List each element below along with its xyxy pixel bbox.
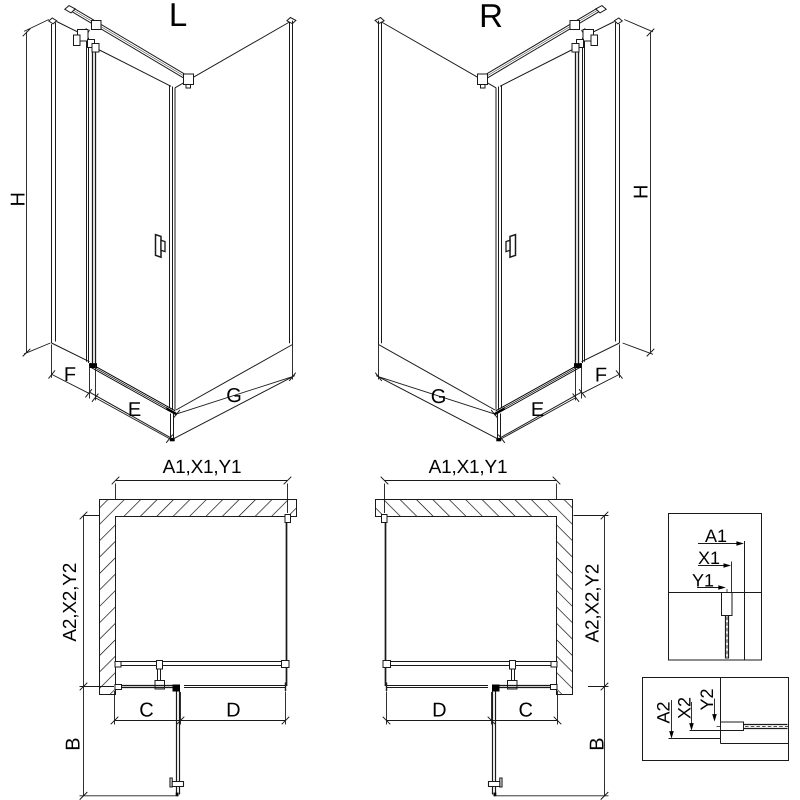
svg-text:X1: X1: [698, 548, 720, 568]
svg-text:C: C: [518, 700, 532, 722]
svg-text:A1,X1,Y1: A1,X1,Y1: [429, 457, 508, 478]
svg-text:G: G: [431, 386, 447, 408]
svg-text:H: H: [8, 192, 30, 206]
svg-text:C: C: [139, 700, 153, 722]
svg-text:H: H: [630, 185, 652, 199]
svg-text:E: E: [531, 399, 544, 421]
svg-text:A1: A1: [705, 526, 727, 546]
svg-text:B: B: [587, 737, 609, 750]
svg-text:Y1: Y1: [692, 571, 714, 591]
svg-text:L: L: [169, 0, 187, 33]
svg-text:X2: X2: [675, 697, 695, 719]
svg-text:D: D: [432, 700, 446, 722]
svg-text:B: B: [63, 737, 85, 750]
svg-text:E: E: [128, 399, 141, 421]
svg-text:Y2: Y2: [697, 688, 717, 710]
svg-text:G: G: [226, 385, 242, 407]
svg-text:A1,X1,Y1: A1,X1,Y1: [163, 457, 242, 478]
svg-text:R: R: [479, 0, 503, 34]
svg-text:F: F: [595, 365, 607, 387]
svg-text:A2: A2: [654, 701, 674, 723]
svg-text:F: F: [64, 364, 76, 386]
svg-text:A2,X2,Y2: A2,X2,Y2: [60, 563, 81, 642]
svg-text:A2,X2,Y2: A2,X2,Y2: [582, 564, 603, 643]
svg-text:D: D: [226, 700, 240, 722]
